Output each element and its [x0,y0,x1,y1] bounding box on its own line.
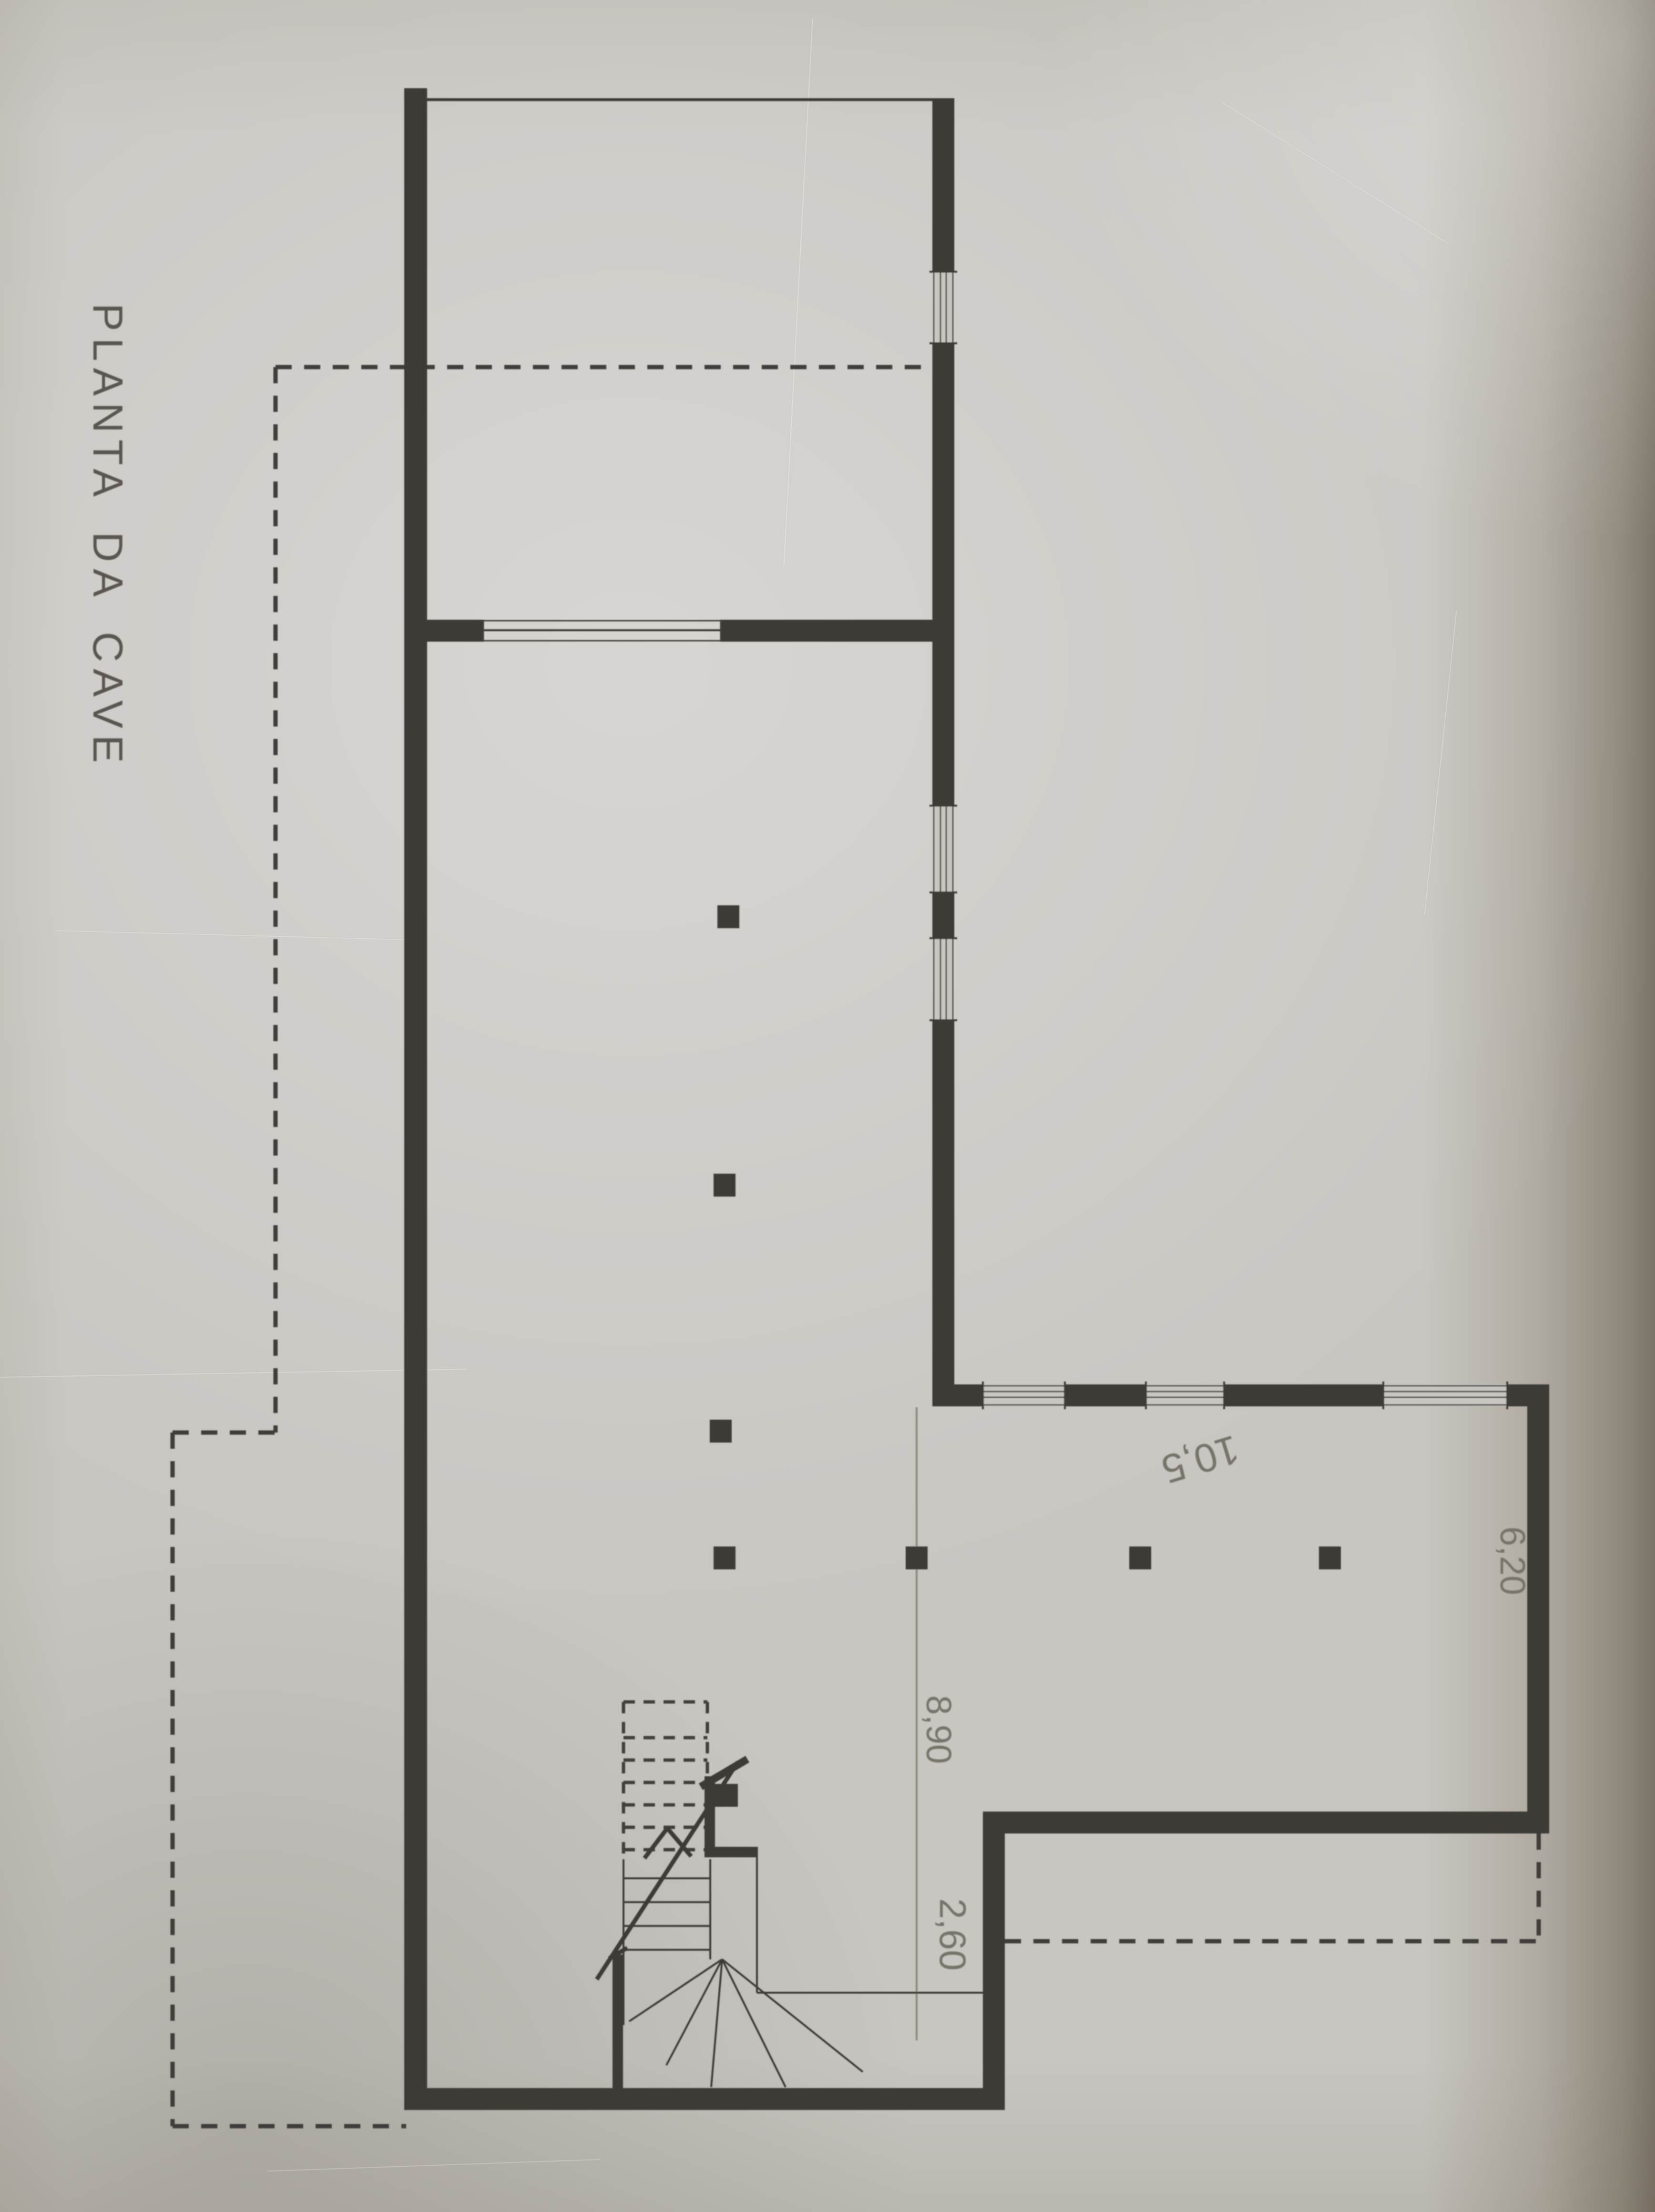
stair-winder-line [629,1959,722,2021]
walls [404,88,1549,2110]
pillar [1319,1546,1341,1569]
entry-recess-wall [983,1812,1005,2110]
dimension-label-hall-length: 8,90 [919,1695,959,1764]
bottom-wall [404,2088,1005,2110]
main-room-top-wall-pier [1224,1384,1383,1406]
stair-winder-line [722,1959,786,2087]
dimension-label-entry-recess: 2,60 [932,1898,974,1971]
stair-arrow-feather [644,1828,667,1858]
stair-landing-wall [705,1847,758,1857]
floor-plan-drawing: PLANTA DA CAVE 8,90 2,60 10,5 6,20 [0,0,1655,2212]
stair-side-wall [613,1955,623,2088]
window-opening [1383,1382,1507,1409]
pillar [717,905,739,928]
left-wall [404,88,427,2110]
stair-break-line [597,1762,738,1979]
stair-side-wall [705,1776,715,1857]
partition-wall [721,620,932,642]
dimension-label-main-room-width: 10,5 [1156,1427,1244,1493]
stair-winder-line [722,1959,863,2072]
pillar [1129,1546,1151,1569]
pillar [906,1546,928,1569]
dimension-label-main-room-depth: 6,20 [1493,1526,1532,1595]
drawing-title: PLANTA DA CAVE [84,303,132,769]
pillars [710,905,1341,1569]
window-opening [930,272,957,343]
main-room-top-wall [954,1384,983,1406]
upper-right-wall [932,98,954,272]
pillar [714,1546,736,1569]
upper-right-wall-pier [932,892,954,938]
main-room-bottom-wall [983,1812,1549,1833]
main-room-right-wall [1527,1384,1549,1833]
pillar [710,1420,732,1443]
upper-right-wall [932,1020,954,1406]
window-opening [1146,1382,1224,1409]
partition-opening [483,620,721,642]
pillar [714,1174,736,1197]
partition-wall-stub [427,620,483,642]
window-opening [983,1382,1065,1409]
upper-right-wall [932,343,954,806]
window-opening [930,938,957,1020]
top-thin-wall [404,98,954,101]
main-room-top-wall-pier [1065,1384,1146,1406]
window-opening [930,806,957,892]
